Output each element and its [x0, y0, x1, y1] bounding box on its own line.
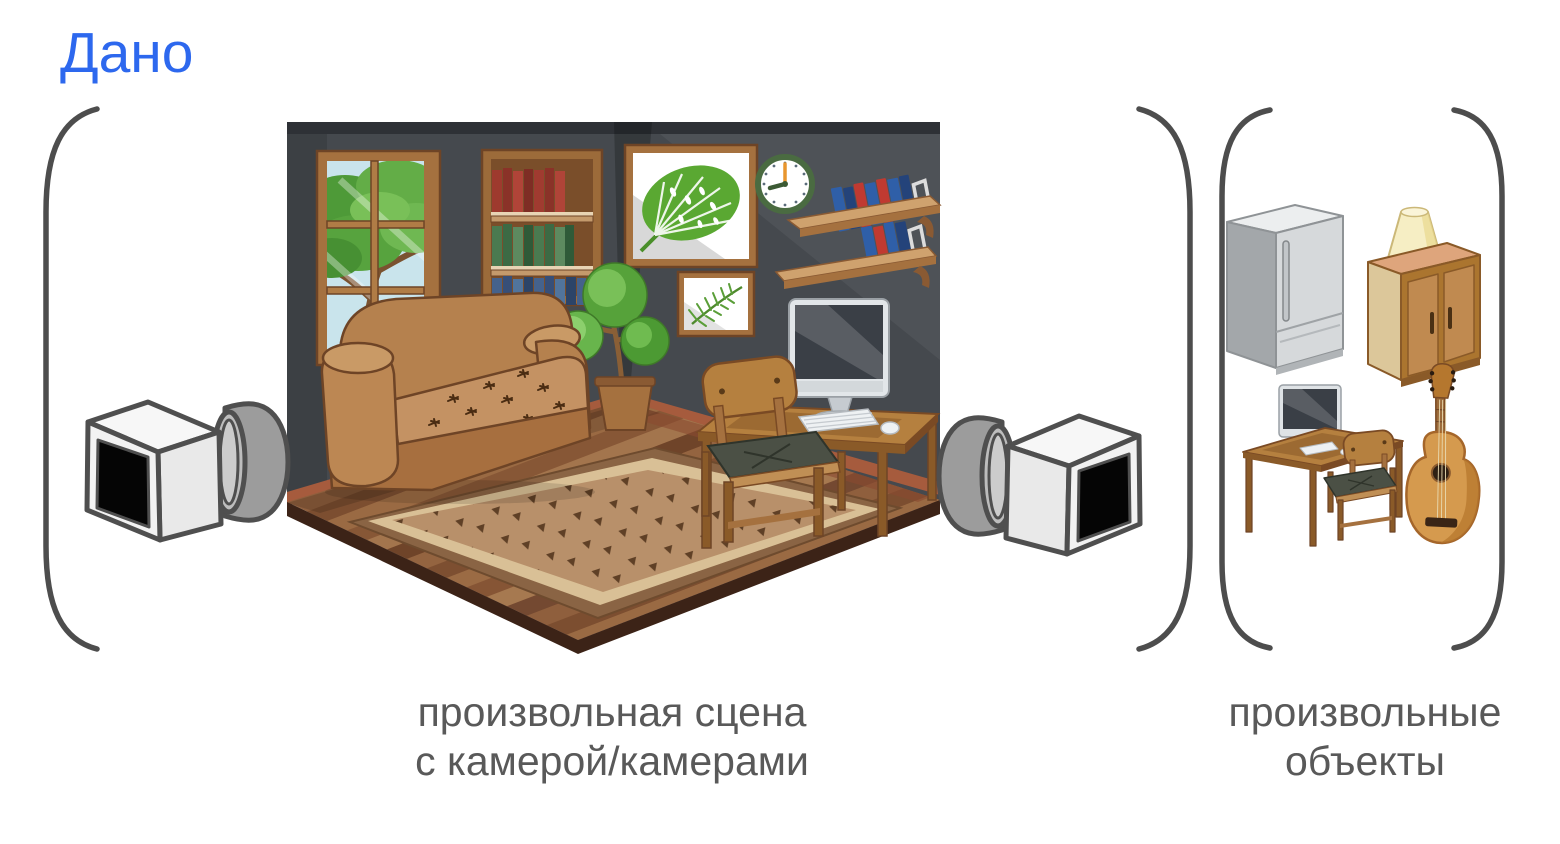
objects-right-bracket [1454, 110, 1502, 648]
cabinet-lamp-illustration [1368, 208, 1480, 388]
refrigerator-illustration [1227, 205, 1343, 375]
objects-caption: произвольные объекты [1165, 688, 1560, 786]
fern-painting [678, 272, 754, 336]
scene-left-bracket [46, 109, 97, 649]
books-green-row [492, 224, 574, 266]
slide: Дано [0, 0, 1560, 844]
objects-caption-line2: объекты [1165, 737, 1560, 786]
desk-set-illustration [1243, 385, 1403, 546]
objects-caption-line1: произвольные [1165, 688, 1560, 737]
wall-clock [758, 157, 812, 211]
cabinet [1368, 243, 1480, 387]
objects-left-bracket [1222, 110, 1270, 648]
wall-bookshelf [482, 150, 602, 305]
scene-right-bracket [1139, 109, 1190, 649]
monstera-painting [625, 145, 757, 267]
mouse [881, 422, 899, 434]
camera-left-icon [87, 402, 288, 540]
scene-caption: произвольная сцена с камерой/камерами [312, 688, 912, 786]
objects-group-brackets [1222, 110, 1502, 648]
scene-caption-line2: с камерой/камерами [312, 737, 912, 786]
camera-right-icon [939, 416, 1140, 554]
guitar-illustration [1404, 362, 1486, 545]
scene-caption-line1: произвольная сцена [312, 688, 912, 737]
